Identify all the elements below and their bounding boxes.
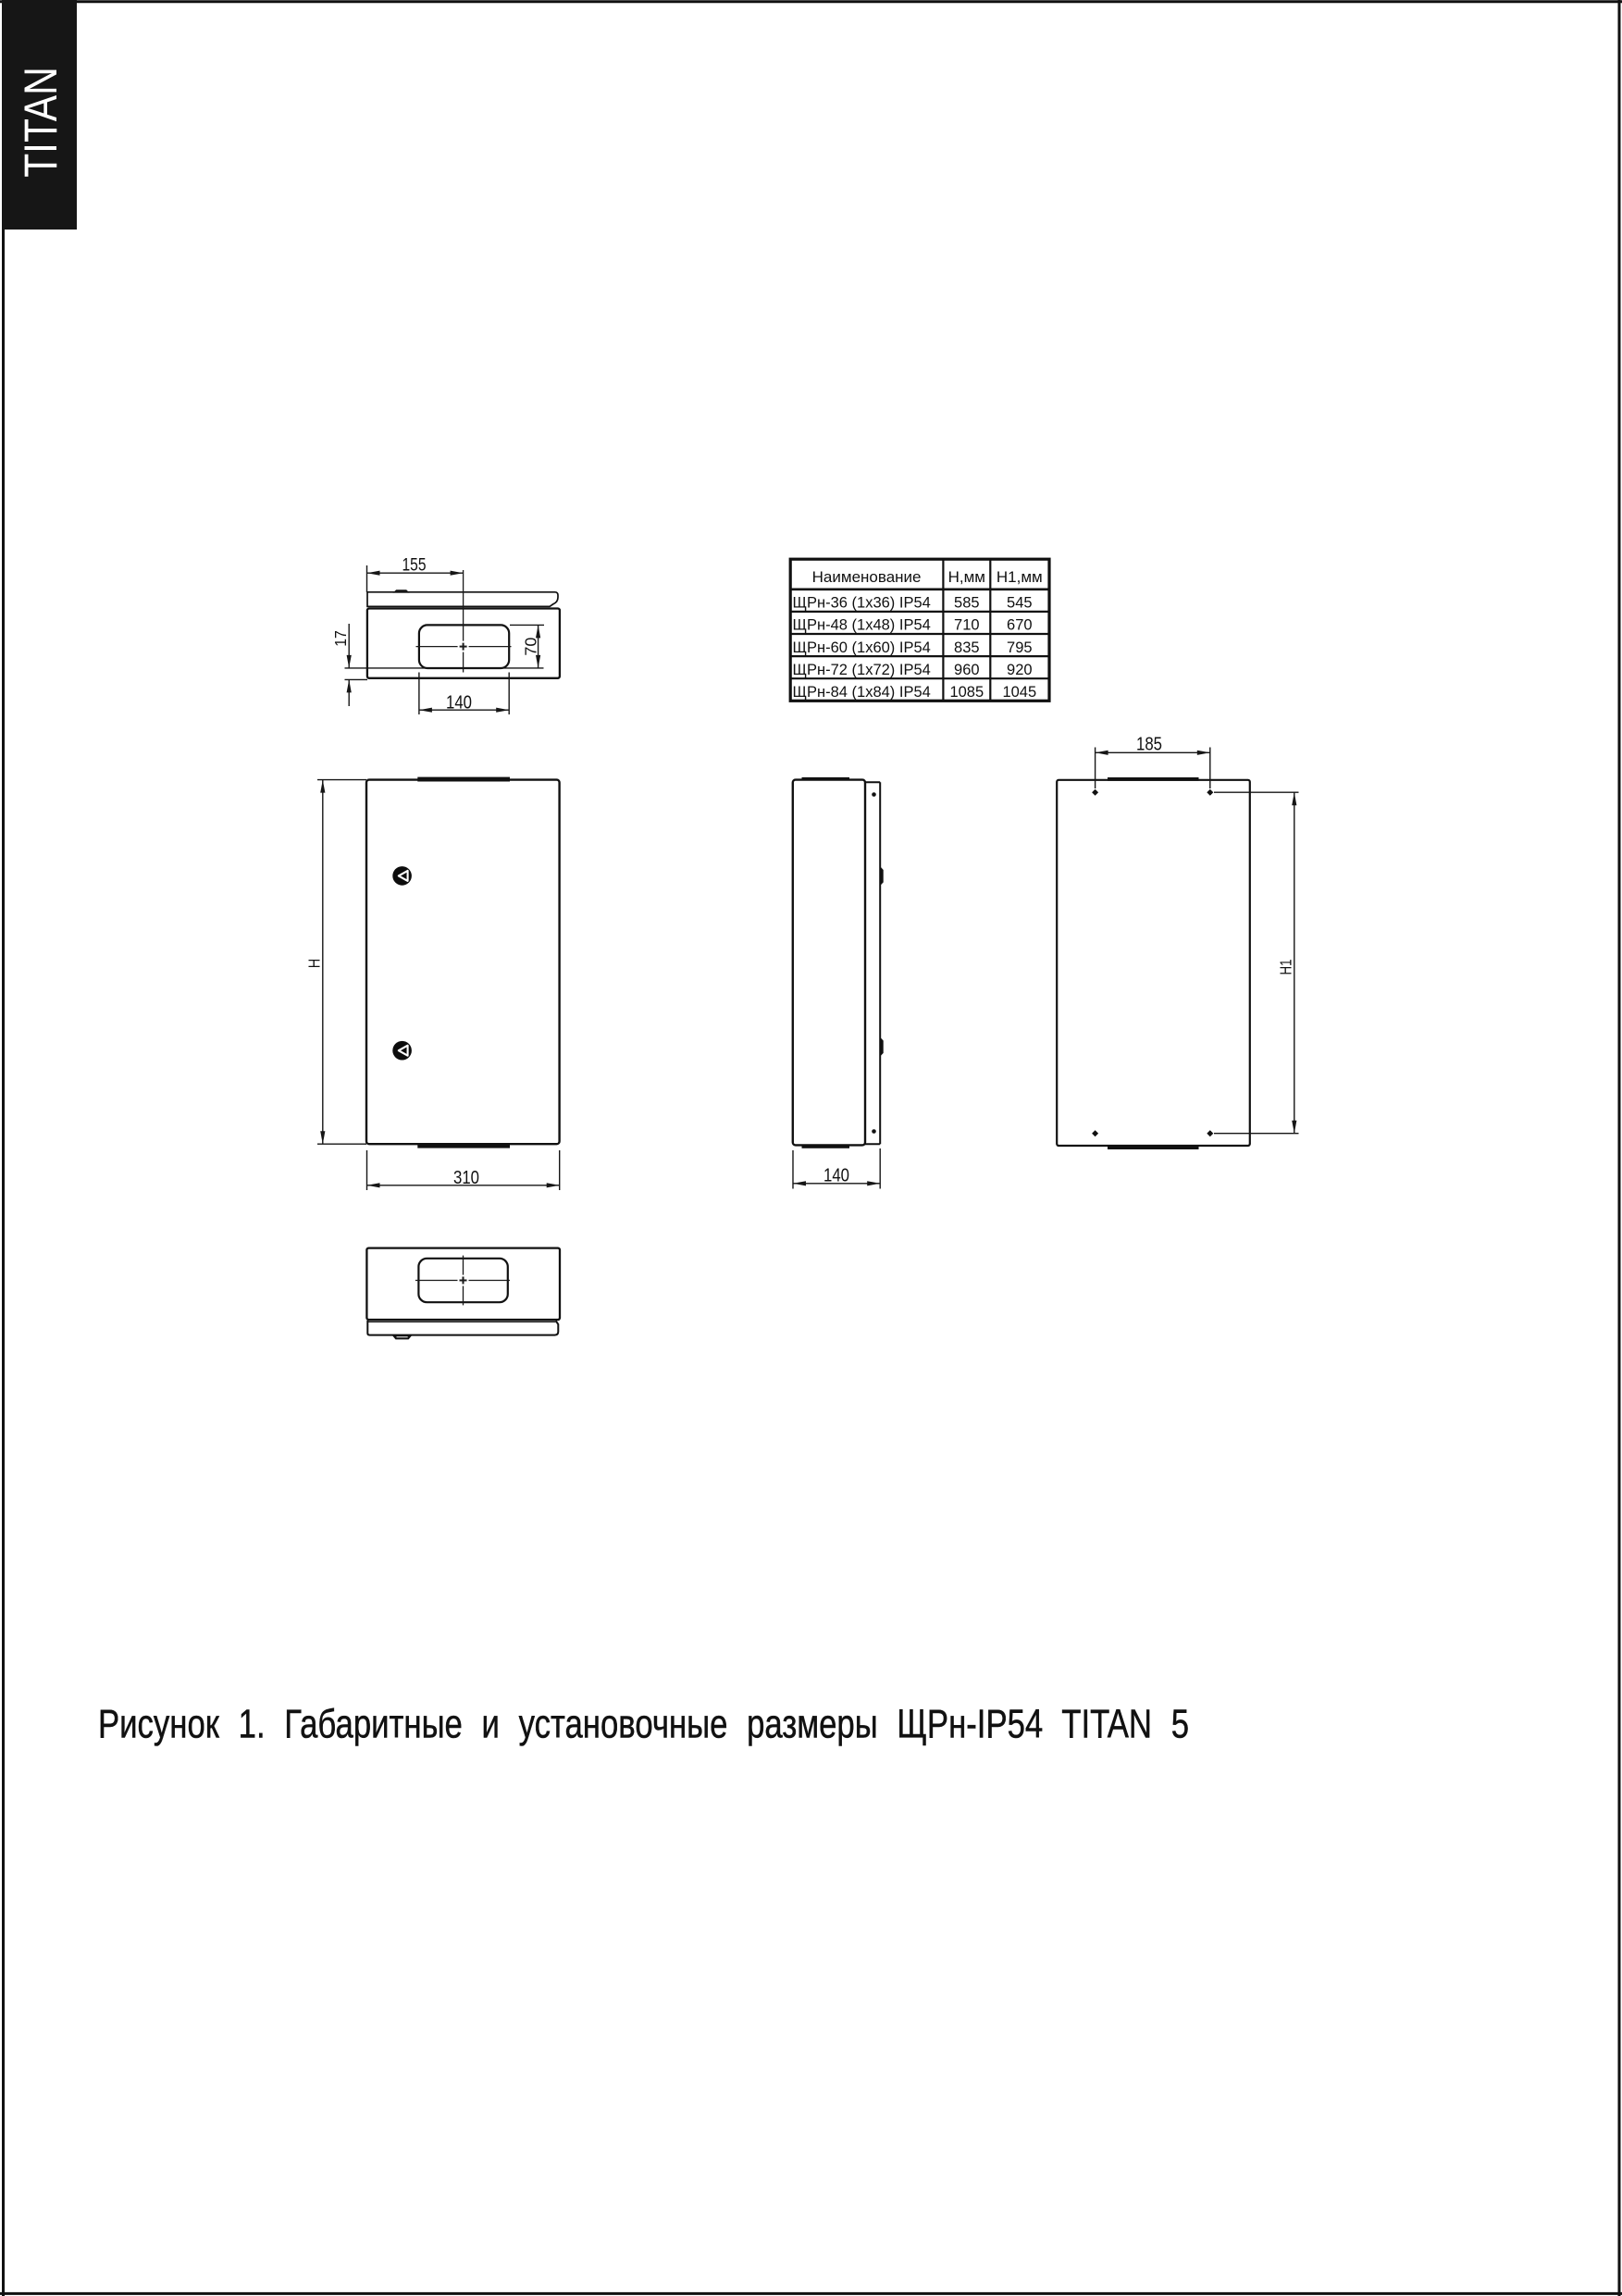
svg-text:545: 545: [1007, 595, 1033, 612]
svg-text:310: 310: [453, 1168, 479, 1188]
svg-text:140: 140: [446, 693, 472, 714]
svg-text:1045: 1045: [1002, 684, 1036, 701]
svg-text:H1: H1: [1277, 960, 1295, 975]
svg-text:Наименование: Наименование: [812, 568, 922, 586]
svg-text:Н,мм: Н,мм: [948, 568, 985, 586]
svg-text:140: 140: [823, 1165, 849, 1185]
svg-text:ЩРн-84 (1х84) IP54: ЩРн-84 (1х84) IP54: [793, 684, 931, 701]
svg-text:960: 960: [954, 662, 980, 678]
svg-text:185: 185: [1136, 735, 1162, 755]
svg-text:H: H: [305, 959, 324, 969]
svg-text:ЩРн-36 (1х36) IP54: ЩРн-36 (1х36) IP54: [793, 595, 931, 612]
svg-text:TITAN: TITAN: [15, 67, 67, 178]
svg-text:Рисунок 1. Габаритные и устано: Рисунок 1. Габаритные и установочные раз…: [98, 1702, 1189, 1747]
svg-text:155: 155: [402, 555, 427, 575]
svg-text:Н1,мм: Н1,мм: [997, 568, 1043, 586]
svg-text:ЩРн-60 (1х60) IP54: ЩРн-60 (1х60) IP54: [793, 639, 931, 656]
svg-text:670: 670: [1007, 617, 1033, 634]
svg-text:920: 920: [1007, 662, 1033, 678]
svg-text:ЩРн-72 (1х72) IP54: ЩРн-72 (1х72) IP54: [793, 662, 931, 678]
svg-text:795: 795: [1007, 639, 1033, 656]
svg-text:17: 17: [331, 630, 350, 647]
svg-text:1085: 1085: [949, 684, 984, 701]
svg-text:ЩРн-48 (1х48) IP54: ЩРн-48 (1х48) IP54: [793, 617, 931, 634]
svg-text:835: 835: [954, 639, 980, 656]
svg-text:710: 710: [954, 617, 980, 634]
svg-text:70: 70: [521, 637, 539, 655]
svg-text:585: 585: [954, 595, 980, 612]
